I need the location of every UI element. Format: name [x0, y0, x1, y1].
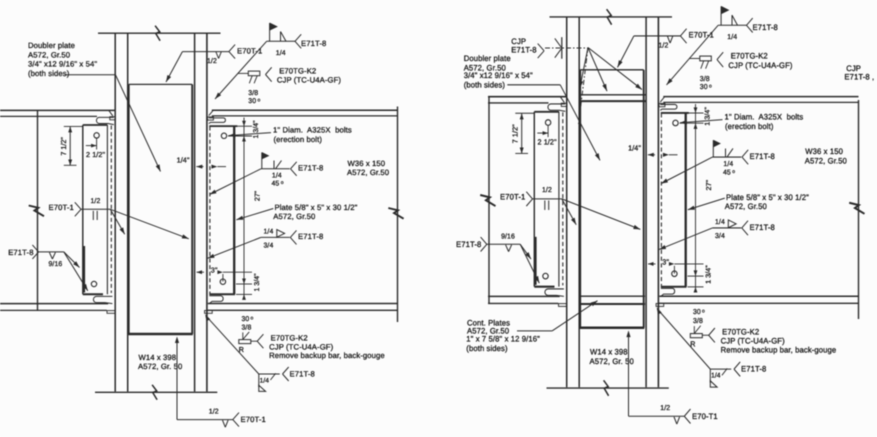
svg-text:o: o — [732, 169, 735, 175]
svg-text:Plate 5/8" x 5" x 30 1/2": Plate 5/8" x 5" x 30 1/2" — [726, 193, 809, 202]
svg-text:W14 x 398: W14 x 398 — [590, 347, 628, 356]
svg-text:1" x 7 5/8" x 12 9/16": 1" x 7 5/8" x 12 9/16" — [466, 335, 540, 344]
svg-text:E70TG-K2: E70TG-K2 — [279, 67, 316, 76]
svg-text:2 1/2": 2 1/2" — [86, 150, 105, 159]
svg-text:1 3/4": 1 3/4" — [704, 107, 712, 126]
svg-text:1/2: 1/2 — [542, 187, 552, 194]
svg-text:45: 45 — [723, 169, 731, 176]
svg-text:1/4: 1/4 — [711, 373, 721, 380]
svg-text:1/4": 1/4" — [177, 155, 190, 164]
svg-text:Remove backup bar, back-gouge: Remove backup bar, back-gouge — [269, 351, 385, 360]
svg-text:Doubler plate: Doubler plate — [28, 41, 75, 50]
svg-text:R: R — [690, 339, 695, 348]
svg-text:o: o — [258, 97, 261, 103]
svg-text:E71T-8: E71T-8 — [298, 232, 323, 241]
svg-text:E71T-8: E71T-8 — [741, 364, 766, 373]
svg-text:E70T-1: E70T-1 — [500, 192, 525, 201]
svg-text:A572, Gr.50: A572, Gr.50 — [273, 212, 315, 221]
svg-text:1/4: 1/4 — [276, 50, 286, 57]
svg-text:1/2: 1/2 — [659, 43, 669, 50]
svg-text:1/4": 1/4" — [628, 143, 641, 152]
svg-text:2 1/2": 2 1/2" — [538, 137, 557, 146]
svg-text:o: o — [281, 180, 284, 186]
svg-text:1 3/4": 1 3/4" — [252, 120, 260, 139]
svg-text:E70TG-K2: E70TG-K2 — [722, 327, 759, 336]
svg-text:1" Diam. A325X bolts: 1" Diam. A325X bolts — [273, 126, 352, 135]
svg-text:E70TG-K2: E70TG-K2 — [731, 51, 768, 60]
svg-text:A572, Gr.50: A572, Gr.50 — [28, 51, 70, 60]
svg-text:3/4" x12 9/16" x 54": 3/4" x12 9/16" x 54" — [28, 60, 97, 69]
svg-text:A572, Gr.50: A572, Gr.50 — [805, 156, 847, 165]
svg-text:Remove backup bar, back-gouge: Remove backup bar, back-gouge — [721, 345, 837, 354]
svg-text:(both sides): (both sides) — [466, 344, 508, 353]
svg-text:A572, Gr.50: A572, Gr.50 — [725, 202, 767, 211]
svg-text:(erection bolt): (erection bolt) — [725, 122, 774, 131]
svg-text:o: o — [702, 309, 705, 315]
svg-text:30: 30 — [248, 98, 256, 105]
svg-text:R: R — [239, 345, 244, 354]
svg-text:27": 27" — [254, 190, 261, 201]
svg-text:(both sides): (both sides) — [28, 69, 70, 78]
svg-text:E71T-8: E71T-8 — [298, 164, 323, 173]
svg-text:E70T-1: E70T-1 — [241, 415, 266, 424]
svg-text:1/4: 1/4 — [723, 161, 733, 168]
svg-text:30: 30 — [693, 309, 701, 316]
svg-text:3/8: 3/8 — [248, 90, 258, 97]
svg-text:o: o — [709, 83, 712, 89]
svg-text:30: 30 — [700, 84, 708, 91]
svg-text:E71T-8: E71T-8 — [456, 240, 481, 249]
svg-text:1/2: 1/2 — [209, 409, 219, 416]
svg-text:E71T-8: E71T-8 — [290, 369, 315, 378]
svg-text:1 3/4": 1 3/4" — [253, 273, 261, 292]
svg-text:E70-T1: E70-T1 — [692, 412, 718, 421]
svg-text:1" Diam. A325X bolts: 1" Diam. A325X bolts — [725, 112, 804, 121]
svg-text:1/4: 1/4 — [727, 34, 737, 41]
svg-text:W36 x 150: W36 x 150 — [805, 147, 843, 156]
svg-text:45: 45 — [272, 181, 280, 188]
svg-text:1/4: 1/4 — [260, 377, 270, 384]
svg-text:E71T-8: E71T-8 — [8, 248, 33, 257]
svg-text:3/4" x12 9/16" x 54": 3/4" x12 9/16" x 54" — [464, 71, 533, 80]
svg-text:W14 x 398: W14 x 398 — [139, 353, 177, 362]
svg-text:Doubler plate: Doubler plate — [464, 54, 511, 63]
svg-text:E71T-8: E71T-8 — [301, 39, 326, 48]
svg-text:CJP (TC-U4A-GF): CJP (TC-U4A-GF) — [269, 342, 333, 351]
svg-text:E71T-8: E71T-8 — [753, 23, 778, 32]
svg-text:3/4: 3/4 — [264, 242, 274, 249]
svg-text:30: 30 — [242, 316, 250, 323]
svg-text:E70TG-K2: E70TG-K2 — [271, 334, 308, 343]
svg-text:A572, Gr. 50: A572, Gr. 50 — [590, 357, 634, 366]
svg-text:CJP (TC-U4A-GF): CJP (TC-U4A-GF) — [721, 336, 785, 345]
svg-text:A572, Gr. 50: A572, Gr. 50 — [138, 362, 182, 371]
svg-text:7 1/2": 7 1/2" — [511, 124, 520, 144]
svg-text:1/2: 1/2 — [91, 198, 101, 205]
svg-text:3/8: 3/8 — [700, 76, 710, 83]
svg-text:(both sides): (both sides) — [464, 80, 506, 89]
svg-text:E70T-1: E70T-1 — [49, 203, 74, 212]
svg-text:Plate 5/8" x 5" x 30 1/2": Plate 5/8" x 5" x 30 1/2" — [275, 203, 358, 212]
svg-text:1/4: 1/4 — [264, 229, 274, 236]
svg-text:3": 3" — [211, 266, 218, 275]
svg-text:W36 x 150: W36 x 150 — [348, 159, 386, 168]
svg-text:3/8: 3/8 — [242, 325, 252, 332]
svg-text:1 3/4": 1 3/4" — [704, 265, 712, 284]
svg-text:7 1/2": 7 1/2" — [59, 137, 68, 156]
svg-text:9/16: 9/16 — [501, 233, 515, 240]
svg-text:o: o — [251, 315, 254, 321]
svg-text:E71T-8: E71T-8 — [750, 223, 775, 232]
svg-text:CJP (TC-U4A-GF): CJP (TC-U4A-GF) — [277, 76, 341, 85]
svg-text:1/4: 1/4 — [715, 219, 725, 226]
svg-text:27": 27" — [706, 179, 713, 190]
svg-text:3/4: 3/4 — [715, 233, 725, 240]
svg-text:1/2: 1/2 — [660, 405, 670, 412]
svg-text:E71T-8 ,: E71T-8 , — [844, 72, 874, 81]
svg-text:E71T-8: E71T-8 — [511, 45, 536, 54]
svg-text:A572, Gr.50: A572, Gr.50 — [347, 168, 389, 177]
svg-text:9/16: 9/16 — [49, 261, 63, 268]
svg-text:1/2: 1/2 — [207, 58, 217, 65]
svg-text:CJP (TC-U4A-GF): CJP (TC-U4A-GF) — [728, 61, 792, 70]
svg-text:1/4: 1/4 — [272, 172, 282, 179]
svg-text:3": 3" — [662, 257, 669, 266]
svg-text:3/8: 3/8 — [693, 318, 703, 325]
svg-text:(erection bolt): (erection bolt) — [274, 135, 323, 144]
svg-text:E71T-8: E71T-8 — [750, 152, 775, 161]
